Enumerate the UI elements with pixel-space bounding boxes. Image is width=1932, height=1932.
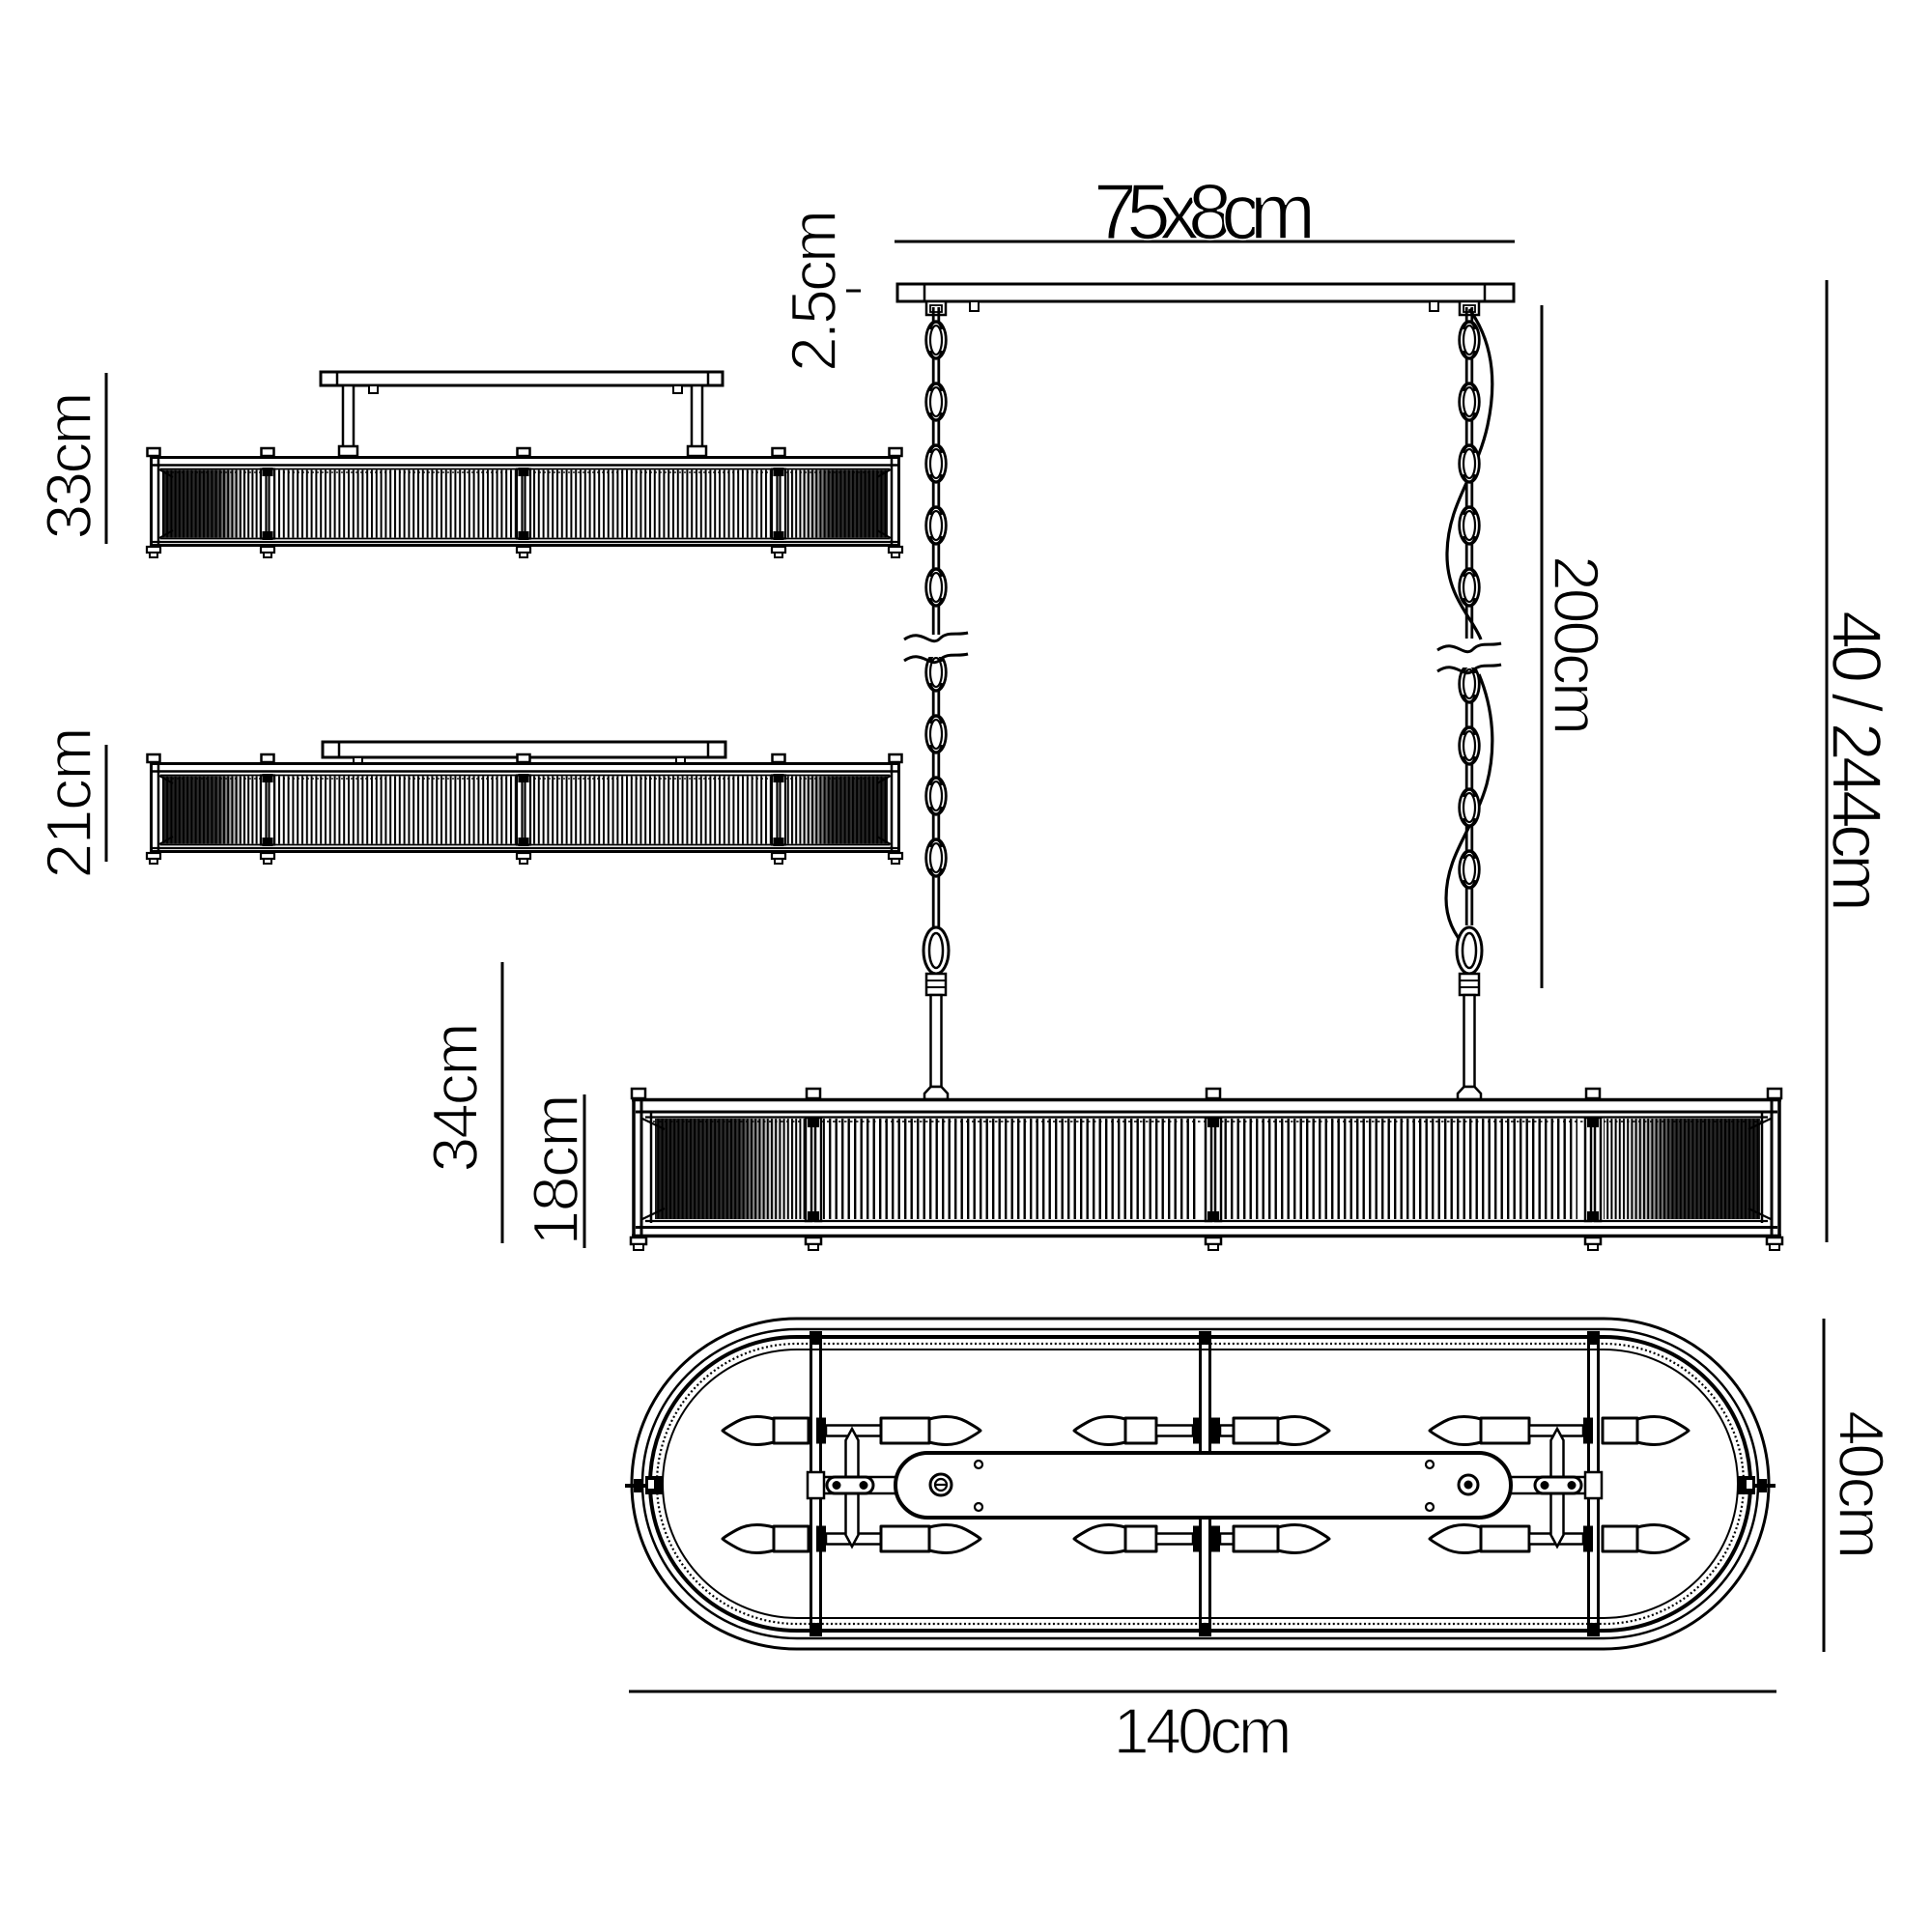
svg-text:200cm: 200cm: [1541, 555, 1612, 735]
svg-text:33cm: 33cm: [33, 392, 104, 540]
svg-text:75x8cm: 75x8cm: [1094, 168, 1316, 256]
svg-text:18cm: 18cm: [520, 1094, 591, 1246]
svg-text:34cm: 34cm: [419, 1023, 491, 1173]
svg-text:140cm: 140cm: [1114, 1695, 1293, 1768]
svg-text:40 / 244cm: 40 / 244cm: [1817, 611, 1894, 912]
svg-text:2.5cm: 2.5cm: [778, 210, 849, 372]
svg-text:40cm: 40cm: [1826, 1410, 1897, 1559]
svg-text:21cm: 21cm: [33, 727, 104, 879]
